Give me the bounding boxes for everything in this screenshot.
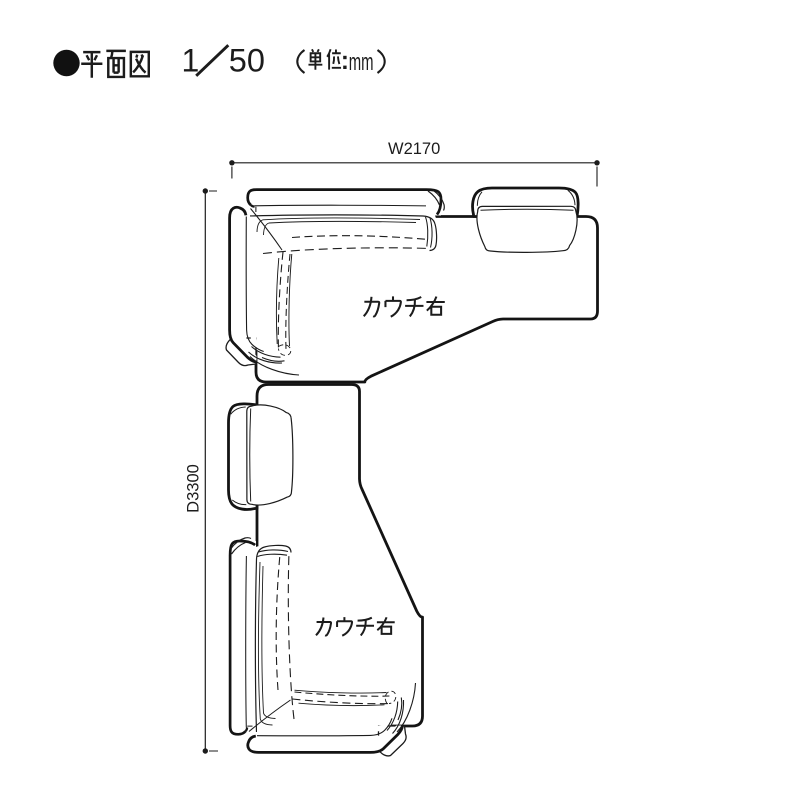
svg-text:mm: mm: [349, 49, 374, 75]
svg-text:D3300: D3300: [184, 464, 202, 513]
svg-text:W2170: W2170: [388, 140, 440, 158]
svg-text:50: 50: [229, 43, 265, 79]
svg-text:1: 1: [182, 42, 200, 78]
